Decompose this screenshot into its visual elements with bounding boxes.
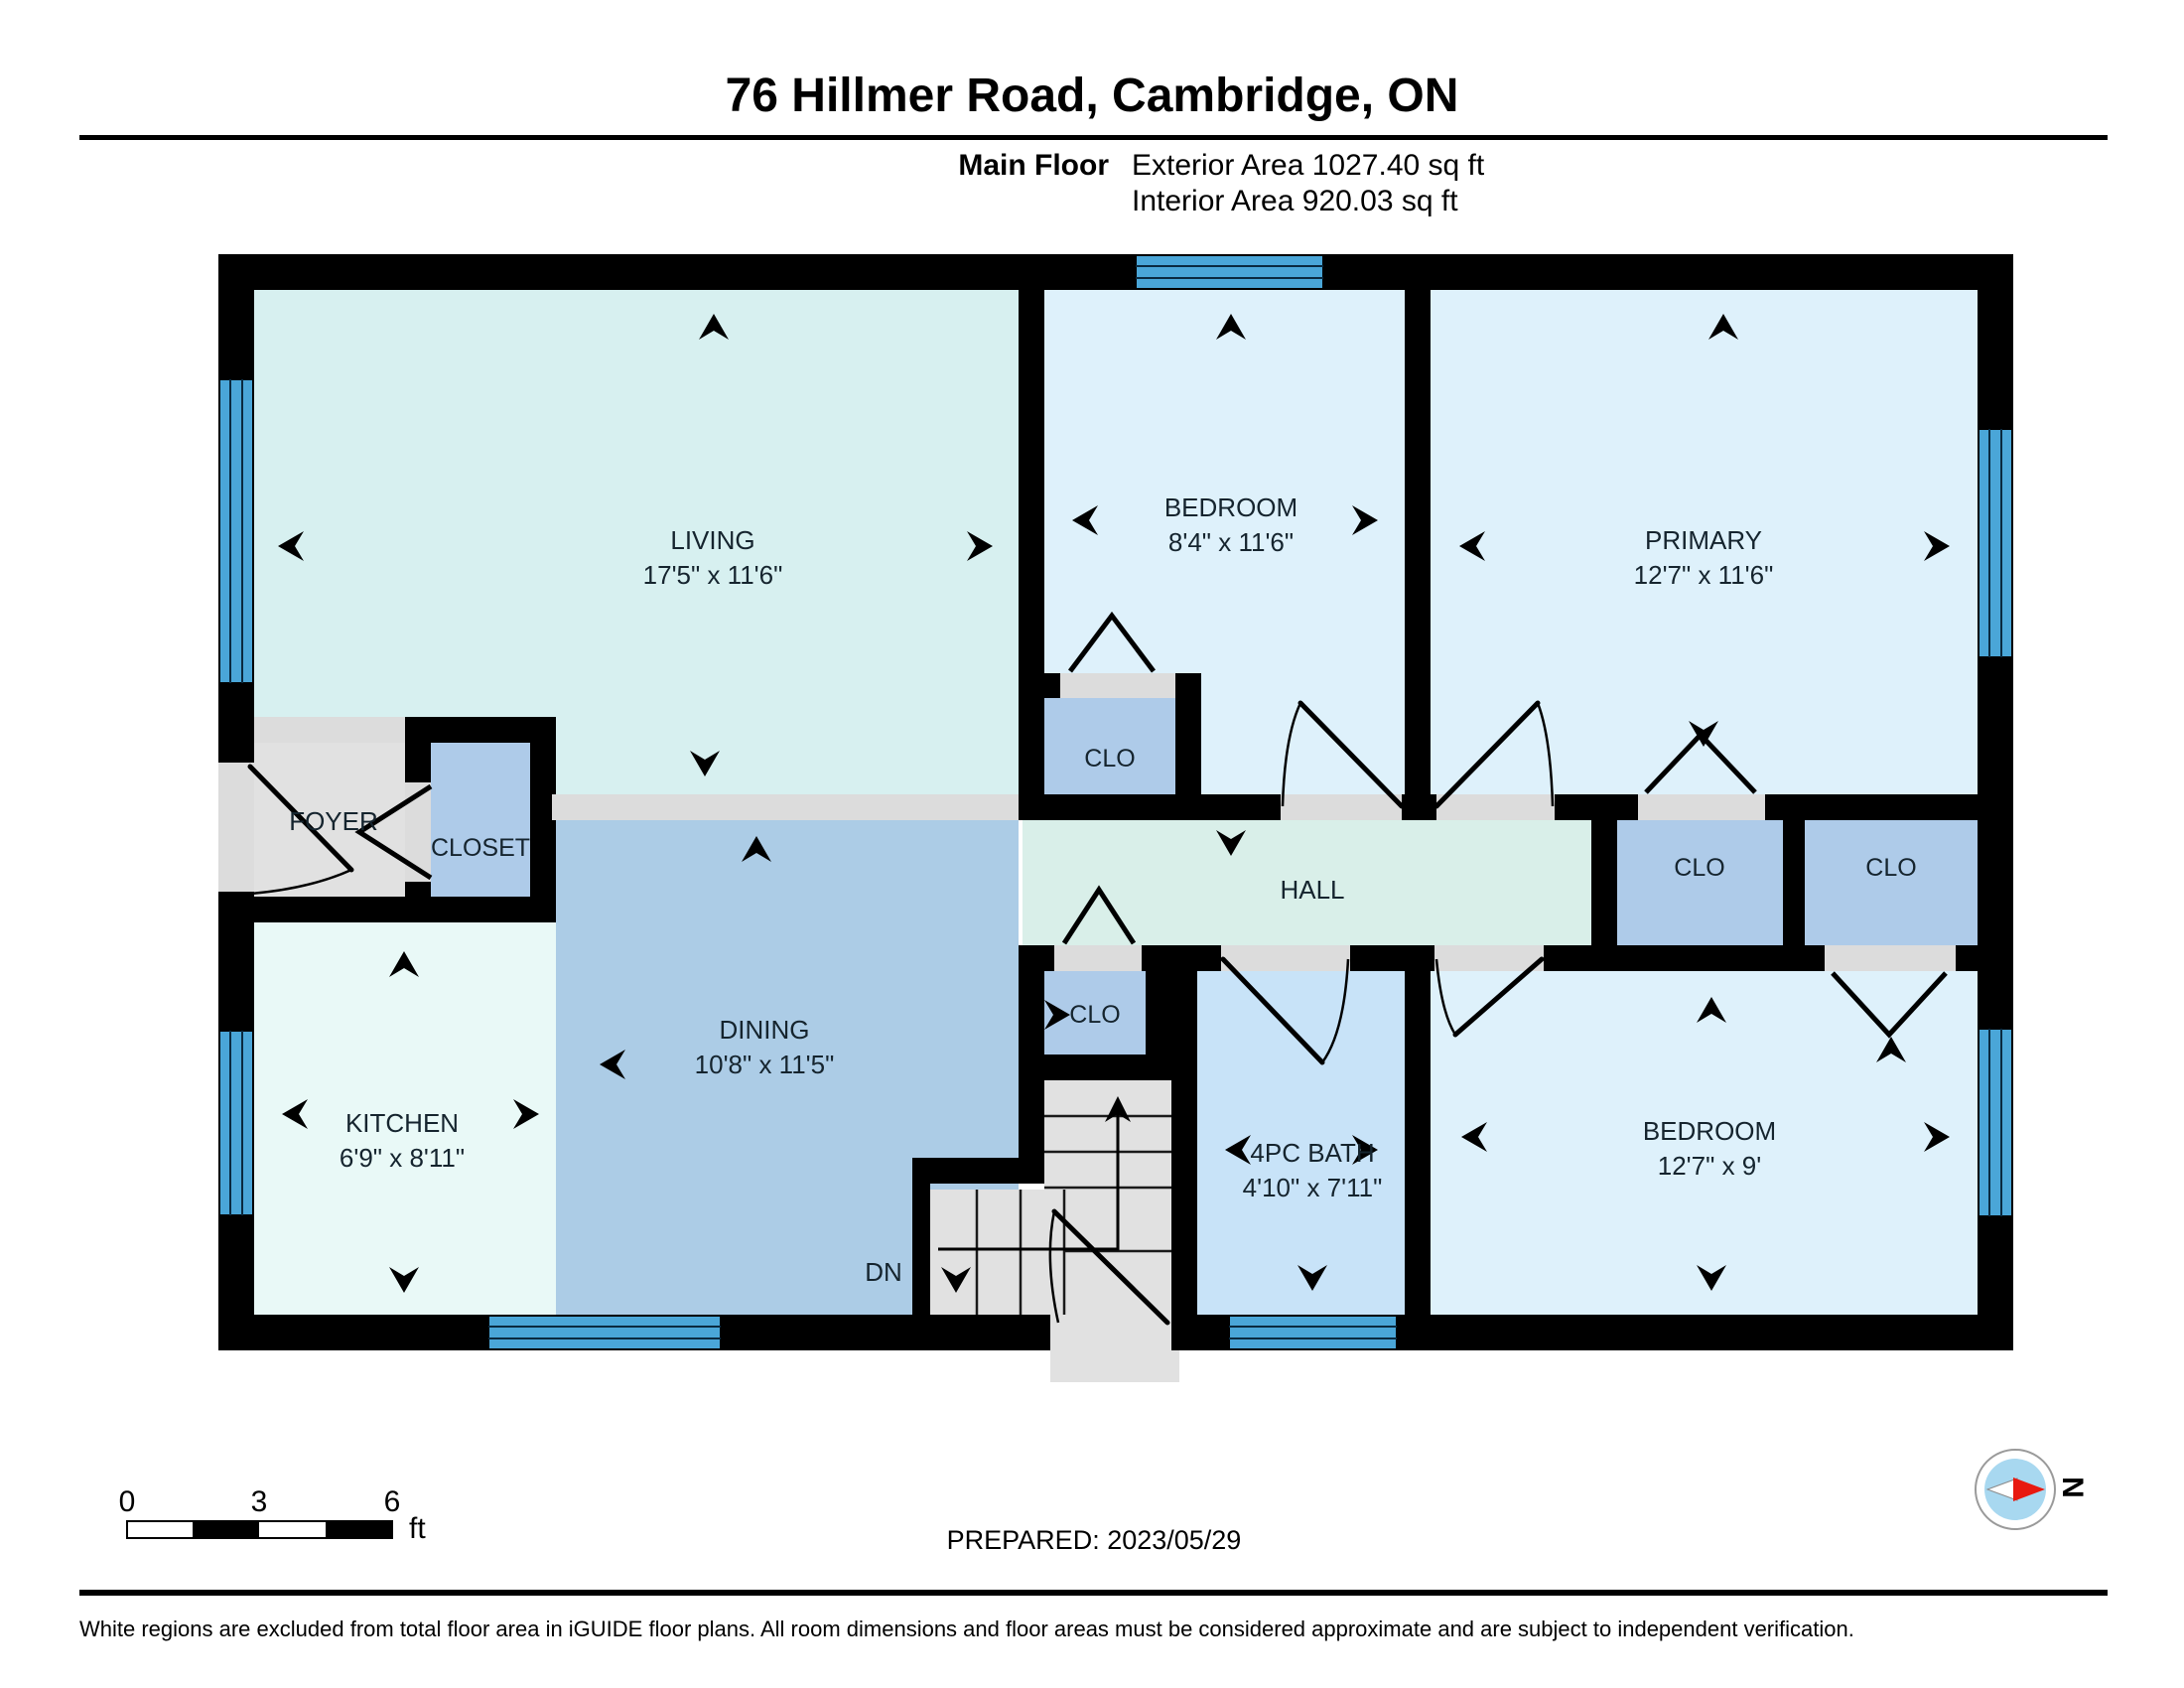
room-bedroom	[1044, 290, 1405, 673]
header-rule	[79, 135, 2108, 140]
window-living-left	[219, 379, 253, 683]
room-closet	[431, 743, 530, 897]
label-foyer: FOYER	[289, 806, 378, 836]
compass-icon: N	[1976, 1450, 2089, 1529]
label-dining: DINING	[720, 1015, 810, 1045]
primary-door-opening	[1436, 794, 1555, 820]
label-bath: 4PC BATH	[1250, 1138, 1374, 1168]
window-dining-bottom	[488, 1316, 721, 1349]
scale-tick-3: 3	[251, 1485, 268, 1518]
window-bath-bottom	[1229, 1316, 1397, 1349]
page-title: 76 Hillmer Road, Cambridge, ON	[726, 70, 1459, 122]
label-primary: PRIMARY	[1645, 525, 1762, 555]
label-kitchen: KITCHEN	[345, 1108, 459, 1138]
label-primary-dims: 12'7" x 11'6"	[1634, 560, 1774, 590]
window-bedroom-top	[1136, 255, 1323, 289]
label-closet: CLOSET	[431, 834, 530, 862]
label-bedroom2-dims: 12'7" x 9'	[1658, 1151, 1761, 1181]
prepared-date: PREPARED: 2023/05/29	[947, 1525, 1242, 1555]
scale-bar: 0 3 6 ft	[119, 1485, 427, 1545]
entry-landing	[1050, 1350, 1179, 1382]
clo-bedroom2-opening	[1825, 945, 1956, 971]
label-dining-dims: 10'8" x 11'5"	[695, 1050, 835, 1079]
bedroom2-door-opening	[1434, 945, 1544, 971]
label-living: LIVING	[670, 525, 754, 555]
bedroom-door-opening	[1281, 794, 1402, 820]
threshold-living-dining	[552, 794, 1019, 820]
clo-primary-opening	[1638, 794, 1765, 820]
bath-door-opening	[1221, 945, 1350, 971]
scale-tick-6: 6	[384, 1485, 401, 1518]
scale-tick-0: 0	[119, 1485, 136, 1518]
label-bedroom2: BEDROOM	[1643, 1116, 1776, 1146]
footer-rule	[79, 1590, 2108, 1596]
disclaimer-text: White regions are excluded from total fl…	[79, 1617, 1854, 1641]
rear-entry-opening	[1050, 1315, 1171, 1350]
floor-label: Main Floor	[958, 149, 1109, 182]
floorplan-page: 76 Hillmer Road, Cambridge, ON Main Floo…	[0, 0, 2184, 1688]
label-bath-dims: 4'10" x 7'11"	[1243, 1173, 1383, 1202]
stair-clo-opening	[1054, 945, 1142, 971]
interior-area: Interior Area 920.03 sq ft	[1132, 185, 1458, 217]
label-stairs-dn: DN	[865, 1257, 902, 1287]
label-stair-clo: CLO	[1069, 1001, 1120, 1029]
label-living-dims: 17'5" x 11'6"	[643, 560, 783, 590]
label-clo-primary: CLO	[1674, 854, 1724, 882]
label-bedroom-clo: CLO	[1084, 745, 1135, 773]
room-clo-bedroom2	[1805, 820, 1978, 945]
label-hall: HALL	[1280, 875, 1344, 905]
label-bedroom: BEDROOM	[1164, 492, 1297, 522]
window-kitchen-left	[219, 1031, 253, 1215]
label-kitchen-dims: 6'9" x 8'11"	[340, 1143, 465, 1173]
label-clo-bedroom2: CLO	[1865, 854, 1916, 882]
entry-door-opening	[218, 763, 254, 892]
compass-north-label: N	[2056, 1477, 2089, 1498]
scale-unit: ft	[409, 1512, 426, 1545]
bedroom-clo-opening	[1060, 673, 1175, 698]
label-bedroom-dims: 8'4" x 11'6"	[1168, 527, 1294, 557]
exterior-area: Exterior Area 1027.40 sq ft	[1132, 149, 1485, 182]
threshold-living-foyer	[254, 717, 405, 743]
window-bedroom2-right	[1979, 1029, 2012, 1216]
window-primary-right	[1979, 429, 2012, 657]
room-clo-primary	[1617, 820, 1783, 945]
